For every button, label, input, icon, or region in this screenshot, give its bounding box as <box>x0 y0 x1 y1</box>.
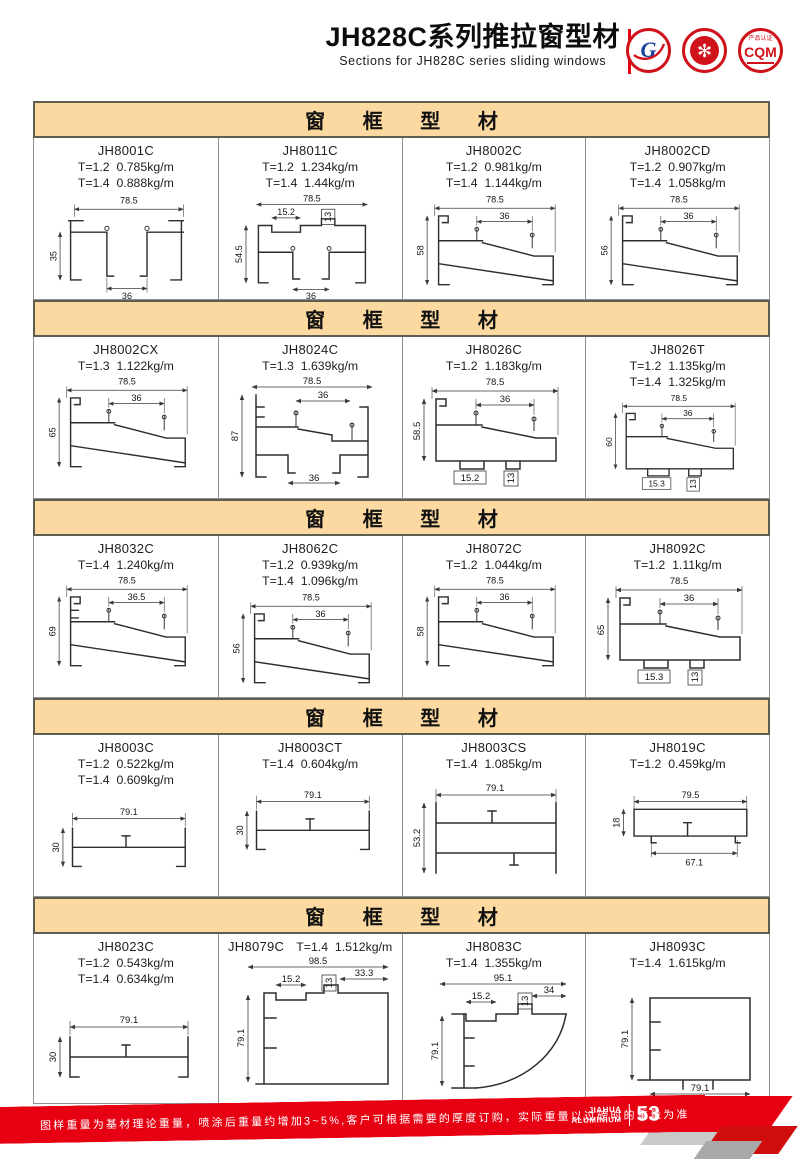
profile-weight: T=1.4 1.085kg/m <box>403 756 586 772</box>
profile-weight: T=1.4 1.096kg/m <box>219 573 402 589</box>
profile-weight: T=1.2 0.543kg/m <box>34 955 218 971</box>
gb-certification-logo-icon: G <box>625 27 672 74</box>
profile-code: JH8032C <box>34 541 218 557</box>
brand-line1: JIAHUA <box>571 1105 621 1115</box>
profile-weight: T=1.4 1.058kg/m <box>586 175 769 191</box>
dim-label: 18 <box>611 818 621 828</box>
profile-weight: T=1.2 1.234kg/m <box>219 159 402 175</box>
dim-label: 78.5 <box>669 576 688 587</box>
dim-label: 36 <box>683 210 693 220</box>
dim-label: 35 <box>48 251 58 261</box>
dim-label: 36 <box>500 394 511 405</box>
dim-label: 79.1 <box>236 1029 247 1048</box>
profile-weight: T=1.4 0.604kg/m <box>219 756 402 772</box>
section-5-header: 窗 框 型 材 <box>33 897 770 934</box>
profile-code: JH8092C <box>586 541 769 557</box>
cqm-certification-logo-icon: 产品认证 CQM <box>737 27 784 74</box>
profile-weight: T=1.2 1.044kg/m <box>403 557 586 573</box>
dim-label: 78.5 <box>118 576 136 586</box>
dim-label: 36.5 <box>128 592 146 602</box>
dim-label: 78.5 <box>486 194 504 204</box>
dim-label: 87 <box>230 431 241 442</box>
section-1-cells: JH8001C T=1.2 0.785kg/m T=1.4 0.888kg/m … <box>33 138 770 300</box>
profile-weight: T=1.2 0.981kg/m <box>403 159 586 175</box>
dim-label: 15.3 <box>644 672 663 683</box>
dim-label: 79.1 <box>620 1030 631 1049</box>
dim-label: 13 <box>687 479 697 489</box>
profile-code: JH8003CT <box>219 740 402 756</box>
profile-drawing: 78.5 36.5 69 <box>36 574 216 681</box>
dim-label: 36 <box>683 408 693 418</box>
cell-jh8083c: JH8083C T=1.4 1.355kg/m 95.1 34 15.2 13 … <box>402 934 586 1103</box>
dim-label: 58 <box>415 245 425 255</box>
dim-label: 13 <box>324 978 335 989</box>
dim-label: 15.2 <box>277 207 295 217</box>
dim-label: 58.5 <box>412 422 423 441</box>
cell-jh8003c: JH8003C T=1.2 0.522kg/m T=1.4 0.609kg/m … <box>34 735 218 896</box>
page-subtitle: Sections for JH828C series sliding windo… <box>325 54 620 68</box>
dim-label: 33.3 <box>355 968 374 979</box>
dim-label: 65 <box>596 625 607 636</box>
profile-weight: T=1.4 1.144kg/m <box>403 175 586 191</box>
profile-weight: T=1.4 1.44kg/m <box>219 175 402 191</box>
dim-label: 78.5 <box>303 376 322 387</box>
profile-weight: T=1.2 1.11kg/m <box>586 557 769 573</box>
profile-code: JH8083C <box>403 939 586 955</box>
profile-weight: T=1.4 1.355kg/m <box>403 955 586 971</box>
profile-code: JH8026C <box>403 342 586 358</box>
dim-label: 36 <box>499 592 509 602</box>
profile-weight: T=1.4 1.615kg/m <box>586 955 769 971</box>
profile-drawing: 79.1 30 <box>36 790 216 896</box>
cell-jh8032c: JH8032C T=1.4 1.240kg/m 78.5 36.5 69 <box>34 536 218 697</box>
profile-drawing: 78.5 36 56 <box>220 591 400 697</box>
dim-label: 78.5 <box>486 377 505 388</box>
profile-drawing: 78.5 35 36 <box>36 193 216 299</box>
page-title: JH828C系列推拉窗型材 <box>325 22 620 53</box>
dim-label: 36 <box>306 291 316 299</box>
dim-label: 67.1 <box>685 858 703 868</box>
dim-label: 13 <box>506 473 517 484</box>
profile-drawing: 98.5 33.3 15.2 13 79.1 <box>220 956 400 1095</box>
dim-label: 36 <box>122 291 132 299</box>
dim-label: 30 <box>48 1051 59 1062</box>
profile-drawing: 79.1 30 <box>220 773 400 880</box>
profile-drawing: 79.1 79.1 <box>588 972 768 1102</box>
profile-drawing: 95.1 34 15.2 13 79.1 <box>404 972 584 1102</box>
dim-label: 53.2 <box>412 829 423 848</box>
cell-jh8093c: JH8093C T=1.4 1.615kg/m 79.1 79.1 <box>585 934 769 1103</box>
dim-label: 79.5 <box>681 790 699 800</box>
dim-label: 78.5 <box>303 193 321 203</box>
profile-code: JH8072C <box>403 541 586 557</box>
dim-label: 30 <box>235 826 245 836</box>
dim-label: 98.5 <box>309 956 328 967</box>
cell-jh8001c: JH8001C T=1.2 0.785kg/m T=1.4 0.888kg/m … <box>34 138 218 299</box>
profile-drawing: 79.1 53.2 <box>404 773 584 885</box>
profile-weight: T=1.3 1.639kg/m <box>219 358 402 374</box>
profile-weight: T=1.4 0.634kg/m <box>34 971 218 987</box>
section-5-cells: JH8023C T=1.2 0.543kg/m T=1.4 0.634kg/m … <box>33 934 770 1104</box>
title-block: JH828C系列推拉窗型材 Sections for JH828C series… <box>325 22 620 68</box>
dim-label: 36 <box>318 390 329 401</box>
section-3-cells: JH8032C T=1.4 1.240kg/m 78.5 36.5 69 JH8… <box>33 536 770 698</box>
dim-label: 69 <box>47 627 57 637</box>
dim-label: 30 <box>51 842 61 852</box>
profile-weight: T=1.2 0.907kg/m <box>586 159 769 175</box>
dim-label: 79.1 <box>430 1042 441 1061</box>
section-4-cells: JH8003C T=1.2 0.522kg/m T=1.4 0.609kg/m … <box>33 735 770 897</box>
dim-label: 36 <box>131 393 141 403</box>
dim-label: 78.5 <box>302 592 320 602</box>
cell-jh8019c: JH8019C T=1.2 0.459kg/m 79.5 18 67.1 <box>585 735 769 896</box>
profile-weight: T=1.4 1.240kg/m <box>34 557 218 573</box>
profile-code: JH8093C <box>586 939 769 955</box>
profile-weight: T=1.2 0.785kg/m <box>34 159 218 175</box>
certification-logos: G ✻ 产品认证 CQM <box>625 27 784 74</box>
quality-seal-logo-icon: ✻ <box>681 27 728 74</box>
profile-drawing: 78.5 36 58 <box>404 574 584 681</box>
svg-text:✻: ✻ <box>697 41 712 61</box>
profile-code: JH8001C <box>34 143 218 159</box>
cell-jh8003ct: JH8003CT T=1.4 0.604kg/m 79.1 30 <box>218 735 402 896</box>
dim-label: 15.2 <box>282 974 301 985</box>
dim-label: 79.1 <box>120 807 138 817</box>
dim-label: 95.1 <box>494 973 513 984</box>
dim-label: 15.2 <box>472 991 491 1002</box>
profile-code: JH8002CD <box>586 143 769 159</box>
profile-weight: T=1.4 1.325kg/m <box>586 374 769 390</box>
section-2-header: 窗 框 型 材 <box>33 300 770 337</box>
section-4-header: 窗 框 型 材 <box>33 698 770 735</box>
profile-drawing: 78.5 36 65 15.3 13 <box>588 574 768 686</box>
dim-label: 15.2 <box>461 473 480 484</box>
dim-label: 65 <box>47 428 57 438</box>
profile-weight: T=1.4 0.609kg/m <box>34 772 218 788</box>
footer-decor-parallelogram-gray-2 <box>694 1141 763 1159</box>
cell-jh8002cx: JH8002CX T=1.3 1.122kg/m 78.5 36 65 <box>34 337 218 498</box>
cell-jh8026c: JH8026C T=1.2 1.183kg/m 78.5 36 58.5 15.… <box>402 337 586 498</box>
dim-label: 15.3 <box>648 478 665 488</box>
dim-label: 13 <box>323 212 333 222</box>
profile-drawing: 79.1 30 <box>36 989 216 1101</box>
profile-weight: T=1.2 0.459kg/m <box>586 756 769 772</box>
profile-code: JH8002CX <box>34 342 218 358</box>
dim-label: 79.1 <box>120 1015 139 1026</box>
profile-weight: T=1.2 1.135kg/m <box>586 358 769 374</box>
profile-code: JH8026T <box>586 342 769 358</box>
cell-jh8002cd: JH8002CD T=1.2 0.907kg/m T=1.4 1.058kg/m… <box>585 138 769 299</box>
cell-jh8024c: JH8024C T=1.3 1.639kg/m 78.5 36 87 36 <box>218 337 402 498</box>
profile-weight: T=1.4 0.888kg/m <box>34 175 218 191</box>
dim-label: 78.5 <box>118 377 136 387</box>
profile-code: JH8024C <box>219 342 402 358</box>
cell-jh8023c: JH8023C T=1.2 0.543kg/m T=1.4 0.634kg/m … <box>34 934 218 1103</box>
cell-jh8003cs: JH8003CS T=1.4 1.085kg/m 79.1 53.2 <box>402 735 586 896</box>
dim-label: 36 <box>499 210 509 220</box>
page-header: JH828C系列推拉窗型材 Sections for JH828C series… <box>0 0 800 100</box>
profile-weight: T=1.2 0.522kg/m <box>34 756 218 772</box>
profile-code: JH8062C <box>219 541 402 557</box>
section-1-header: 窗 框 型 材 <box>33 101 770 138</box>
page-number: 53 <box>636 1102 660 1126</box>
cell-jh8011c: JH8011C T=1.2 1.234kg/m T=1.4 1.44kg/m 7… <box>218 138 402 299</box>
profile-drawing: 78.5 36 65 <box>36 375 216 482</box>
cell-jh8026t: JH8026T T=1.2 1.135kg/m T=1.4 1.325kg/m … <box>585 337 769 498</box>
brand-separator <box>628 1103 629 1125</box>
profile-weight: T=1.3 1.122kg/m <box>34 358 218 374</box>
profile-code: JH8011C <box>219 143 402 159</box>
svg-text:CQM: CQM <box>744 44 777 60</box>
dim-label: 54.5 <box>234 245 244 263</box>
profile-weight: T=1.2 0.939kg/m <box>219 557 402 573</box>
profile-drawing: 78.5 36 58.5 15.2 13 <box>404 375 584 487</box>
section-2-cells: JH8002CX T=1.3 1.122kg/m 78.5 36 65 JH80… <box>33 337 770 499</box>
dim-label: 13 <box>690 672 701 683</box>
dim-label: 36 <box>309 473 320 484</box>
profile-drawing: 78.5 36 56 <box>588 193 768 299</box>
dim-label: 79.1 <box>486 783 505 794</box>
profile-drawing: 78.5 36 58 <box>404 193 584 299</box>
catalog-sheet: 窗 框 型 材 JH8001C T=1.2 0.785kg/m T=1.4 0.… <box>33 101 770 1104</box>
footer-brand: JIAHUA ALUMINIUM 53 <box>571 1095 660 1134</box>
dim-label: 79.1 <box>304 790 322 800</box>
cell-jh8072c: JH8072C T=1.2 1.044kg/m 78.5 36 58 <box>402 536 586 697</box>
dim-label: 36 <box>316 608 326 618</box>
profile-weight: T=1.2 1.183kg/m <box>403 358 586 374</box>
profile-drawing: 79.5 18 67.1 <box>588 773 768 880</box>
dim-label: 78.5 <box>670 194 688 204</box>
dim-label: 36 <box>683 593 694 604</box>
profile-code: JH8023C <box>34 939 218 955</box>
profile-drawing: 78.5 36 87 36 <box>220 375 400 487</box>
brand-name: JIAHUA ALUMINIUM <box>571 1105 622 1124</box>
dim-label: 79.1 <box>690 1083 709 1094</box>
brand-line2: ALUMINIUM <box>571 1115 621 1125</box>
cell-jh8002c: JH8002C T=1.2 0.981kg/m T=1.4 1.144kg/m … <box>402 138 586 299</box>
dim-label: 56 <box>599 245 609 255</box>
dim-label: 34 <box>544 985 555 996</box>
cell-jh8092c: JH8092C T=1.2 1.11kg/m 78.5 36 65 15.3 1… <box>585 536 769 697</box>
profile-drawing: 78.5 36 60 15.3 13 <box>588 392 768 492</box>
cell-jh8079c: JH8079C T=1.4 1.512kg/m 98.5 33.3 15.2 1… <box>218 934 402 1103</box>
profile-code: JH8019C <box>586 740 769 756</box>
dim-label: 78.5 <box>670 393 687 403</box>
profile-code: JH8003C <box>34 740 218 756</box>
dim-label: 60 <box>604 437 614 447</box>
svg-text:产品认证: 产品认证 <box>748 34 772 42</box>
dim-label: 78.5 <box>486 576 504 586</box>
profile-code: JH8002C <box>403 143 586 159</box>
cell-jh8062c: JH8062C T=1.2 0.939kg/m T=1.4 1.096kg/m … <box>218 536 402 697</box>
profile-weight: T=1.4 1.512kg/m <box>296 939 392 955</box>
profile-code: JH8079C <box>228 939 284 955</box>
profile-code: JH8003CS <box>403 740 586 756</box>
section-3-header: 窗 框 型 材 <box>33 499 770 536</box>
profile-drawing: 78.5 15.2 13 54.5 36 <box>220 193 400 299</box>
dim-label: 78.5 <box>120 195 138 205</box>
dim-label: 56 <box>231 643 241 653</box>
dim-label: 58 <box>415 627 425 637</box>
